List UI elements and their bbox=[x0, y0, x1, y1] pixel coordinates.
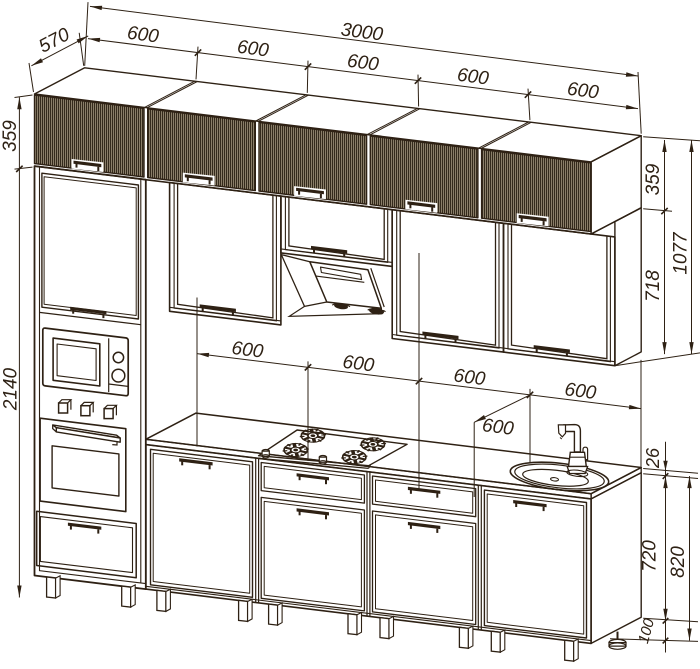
svg-text:600: 600 bbox=[563, 379, 597, 404]
svg-text:600: 600 bbox=[456, 65, 491, 90]
svg-text:600: 600 bbox=[452, 365, 486, 390]
svg-text:2140: 2140 bbox=[1, 367, 22, 411]
svg-text:359: 359 bbox=[0, 120, 21, 152]
svg-text:720: 720 bbox=[640, 540, 661, 572]
svg-text:600: 600 bbox=[481, 415, 515, 440]
svg-text:1077: 1077 bbox=[671, 231, 692, 275]
svg-text:600: 600 bbox=[126, 23, 161, 48]
svg-text:600: 600 bbox=[236, 37, 271, 62]
svg-text:600: 600 bbox=[230, 338, 264, 363]
svg-text:600: 600 bbox=[566, 79, 601, 104]
svg-text:600: 600 bbox=[341, 352, 375, 377]
svg-text:26: 26 bbox=[643, 447, 663, 469]
svg-text:359: 359 bbox=[643, 163, 664, 195]
svg-text:600: 600 bbox=[346, 51, 381, 76]
svg-text:820: 820 bbox=[668, 546, 689, 578]
svg-text:718: 718 bbox=[643, 270, 664, 302]
